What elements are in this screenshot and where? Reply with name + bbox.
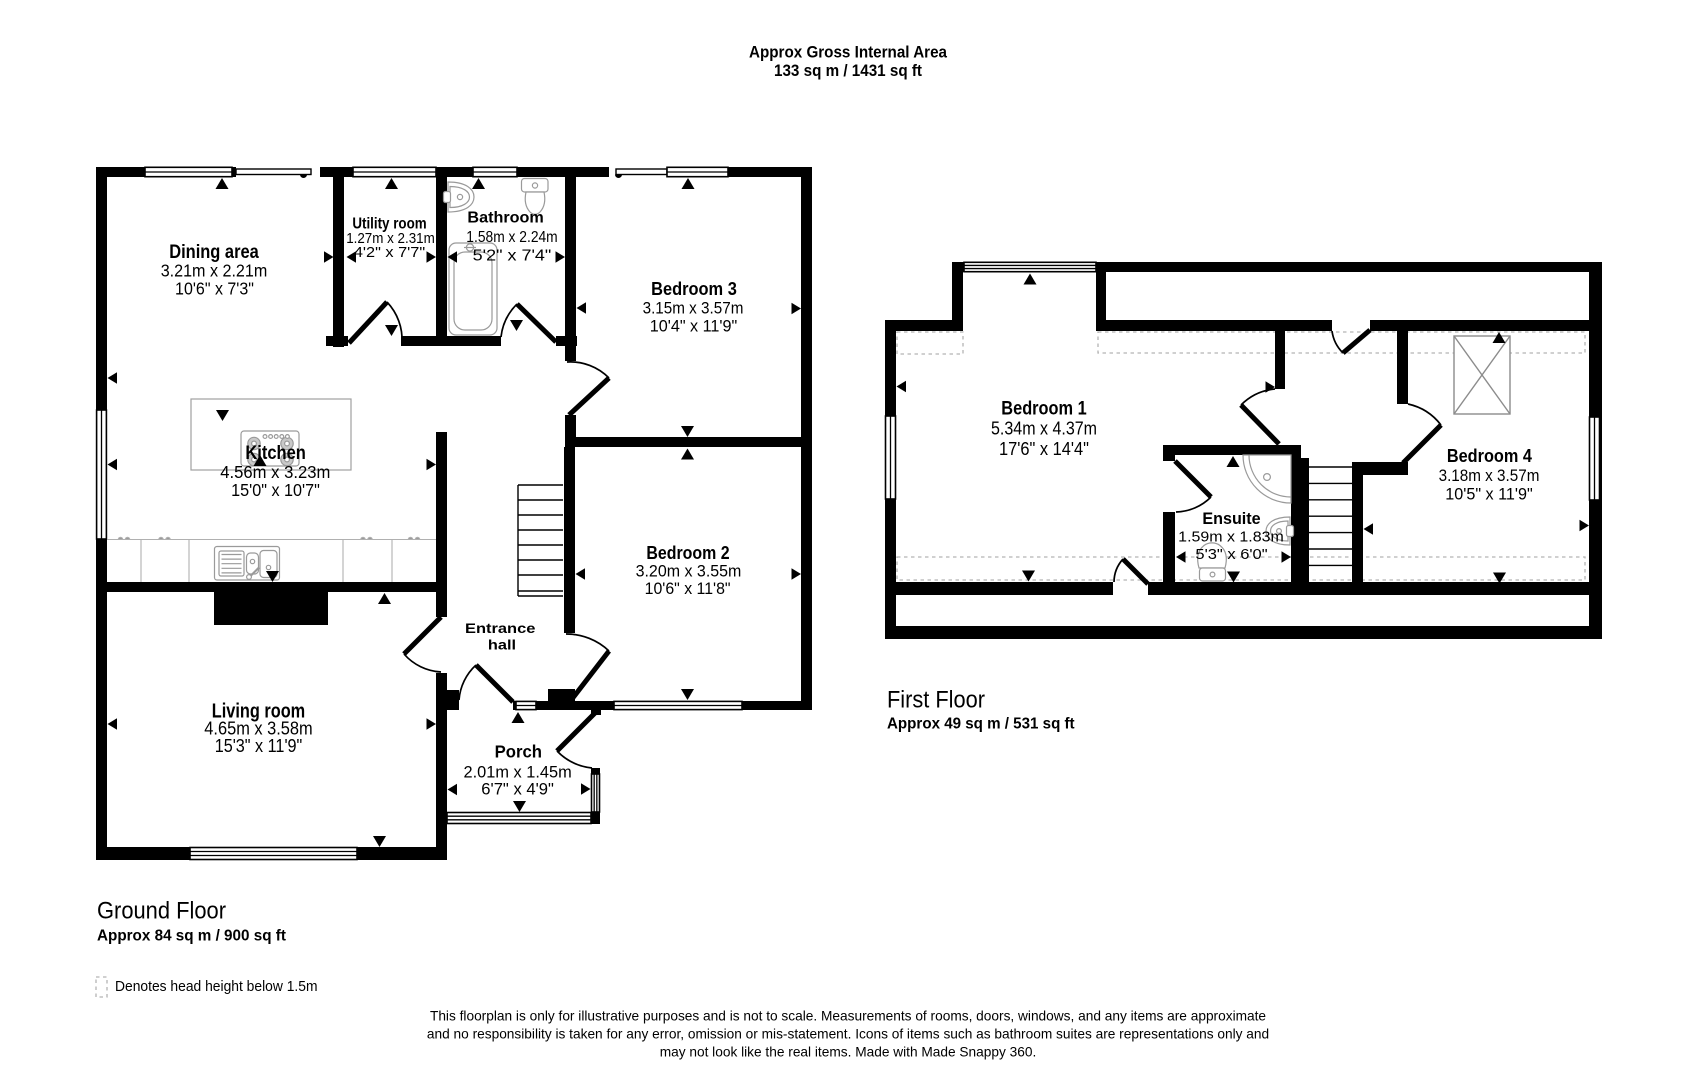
- svg-text:3.20m x 3.55m: 3.20m x 3.55m: [636, 562, 742, 581]
- svg-text:Bedroom 3: Bedroom 3: [651, 278, 737, 299]
- svg-text:Ensuite: Ensuite: [1202, 510, 1260, 528]
- svg-text:Approx Gross Internal Area: Approx Gross Internal Area: [749, 43, 947, 62]
- svg-text:3.15m x 3.57m: 3.15m x 3.57m: [643, 299, 744, 318]
- svg-text:Porch: Porch: [495, 742, 542, 762]
- svg-text:10'4" x 11'9": 10'4" x 11'9": [650, 317, 738, 336]
- svg-text:1.58m x 2.24m: 1.58m x 2.24m: [466, 229, 557, 246]
- svg-text:hall: hall: [488, 637, 516, 653]
- svg-text:Kitchen: Kitchen: [245, 443, 306, 464]
- svg-text:15'0" x 10'7": 15'0" x 10'7": [231, 480, 320, 500]
- svg-text:4'2" x 7'7": 4'2" x 7'7": [354, 244, 425, 261]
- svg-text:5'2" x 7'4": 5'2" x 7'4": [473, 247, 552, 264]
- svg-text:5.34m x 4.37m: 5.34m x 4.37m: [991, 419, 1097, 439]
- svg-text:Approx 49 sq m / 531 sq ft: Approx 49 sq m / 531 sq ft: [887, 716, 1075, 733]
- svg-text:Denotes head height below 1.5m: Denotes head height below 1.5m: [115, 979, 318, 995]
- svg-text:1.59m x 1.83m: 1.59m x 1.83m: [1178, 530, 1284, 546]
- svg-text:4.56m x 3.23m: 4.56m x 3.23m: [220, 462, 330, 482]
- svg-text:10'6" x 7'3": 10'6" x 7'3": [175, 278, 254, 298]
- svg-text:Bedroom 4: Bedroom 4: [1447, 445, 1533, 466]
- svg-text:17'6" x 14'4": 17'6" x 14'4": [999, 439, 1089, 459]
- svg-text:First Floor: First Floor: [887, 686, 985, 713]
- svg-text:3.18m x 3.57m: 3.18m x 3.57m: [1439, 466, 1540, 485]
- svg-text:and no responsibility is taken: and no responsibility is taken for any e…: [427, 1027, 1269, 1042]
- svg-text:6'7" x 4'9": 6'7" x 4'9": [481, 781, 554, 799]
- svg-text:Entrance: Entrance: [465, 620, 536, 636]
- svg-text:5'3" x 6'0": 5'3" x 6'0": [1195, 547, 1267, 563]
- svg-text:Bedroom 2: Bedroom 2: [646, 542, 729, 563]
- svg-text:15'3" x 11'9": 15'3" x 11'9": [215, 736, 303, 756]
- svg-text:Approx 84 sq m / 900 sq ft: Approx 84 sq m / 900 sq ft: [97, 928, 287, 945]
- svg-text:Ground Floor: Ground Floor: [97, 897, 226, 924]
- svg-text:This floorplan is only for ill: This floorplan is only for illustrative …: [430, 1009, 1266, 1024]
- svg-text:Bathroom: Bathroom: [467, 210, 543, 227]
- svg-text:may not look like the real ite: may not look like the real items. Made w…: [660, 1044, 1037, 1059]
- svg-text:Bedroom 1: Bedroom 1: [1001, 398, 1087, 420]
- svg-text:10'5" x 11'9": 10'5" x 11'9": [1445, 485, 1533, 504]
- svg-text:2.01m x 1.45m: 2.01m x 1.45m: [464, 764, 572, 782]
- svg-text:133 sq m / 1431 sq ft: 133 sq m / 1431 sq ft: [774, 61, 922, 80]
- svg-text:10'6" x 11'8": 10'6" x 11'8": [645, 579, 731, 598]
